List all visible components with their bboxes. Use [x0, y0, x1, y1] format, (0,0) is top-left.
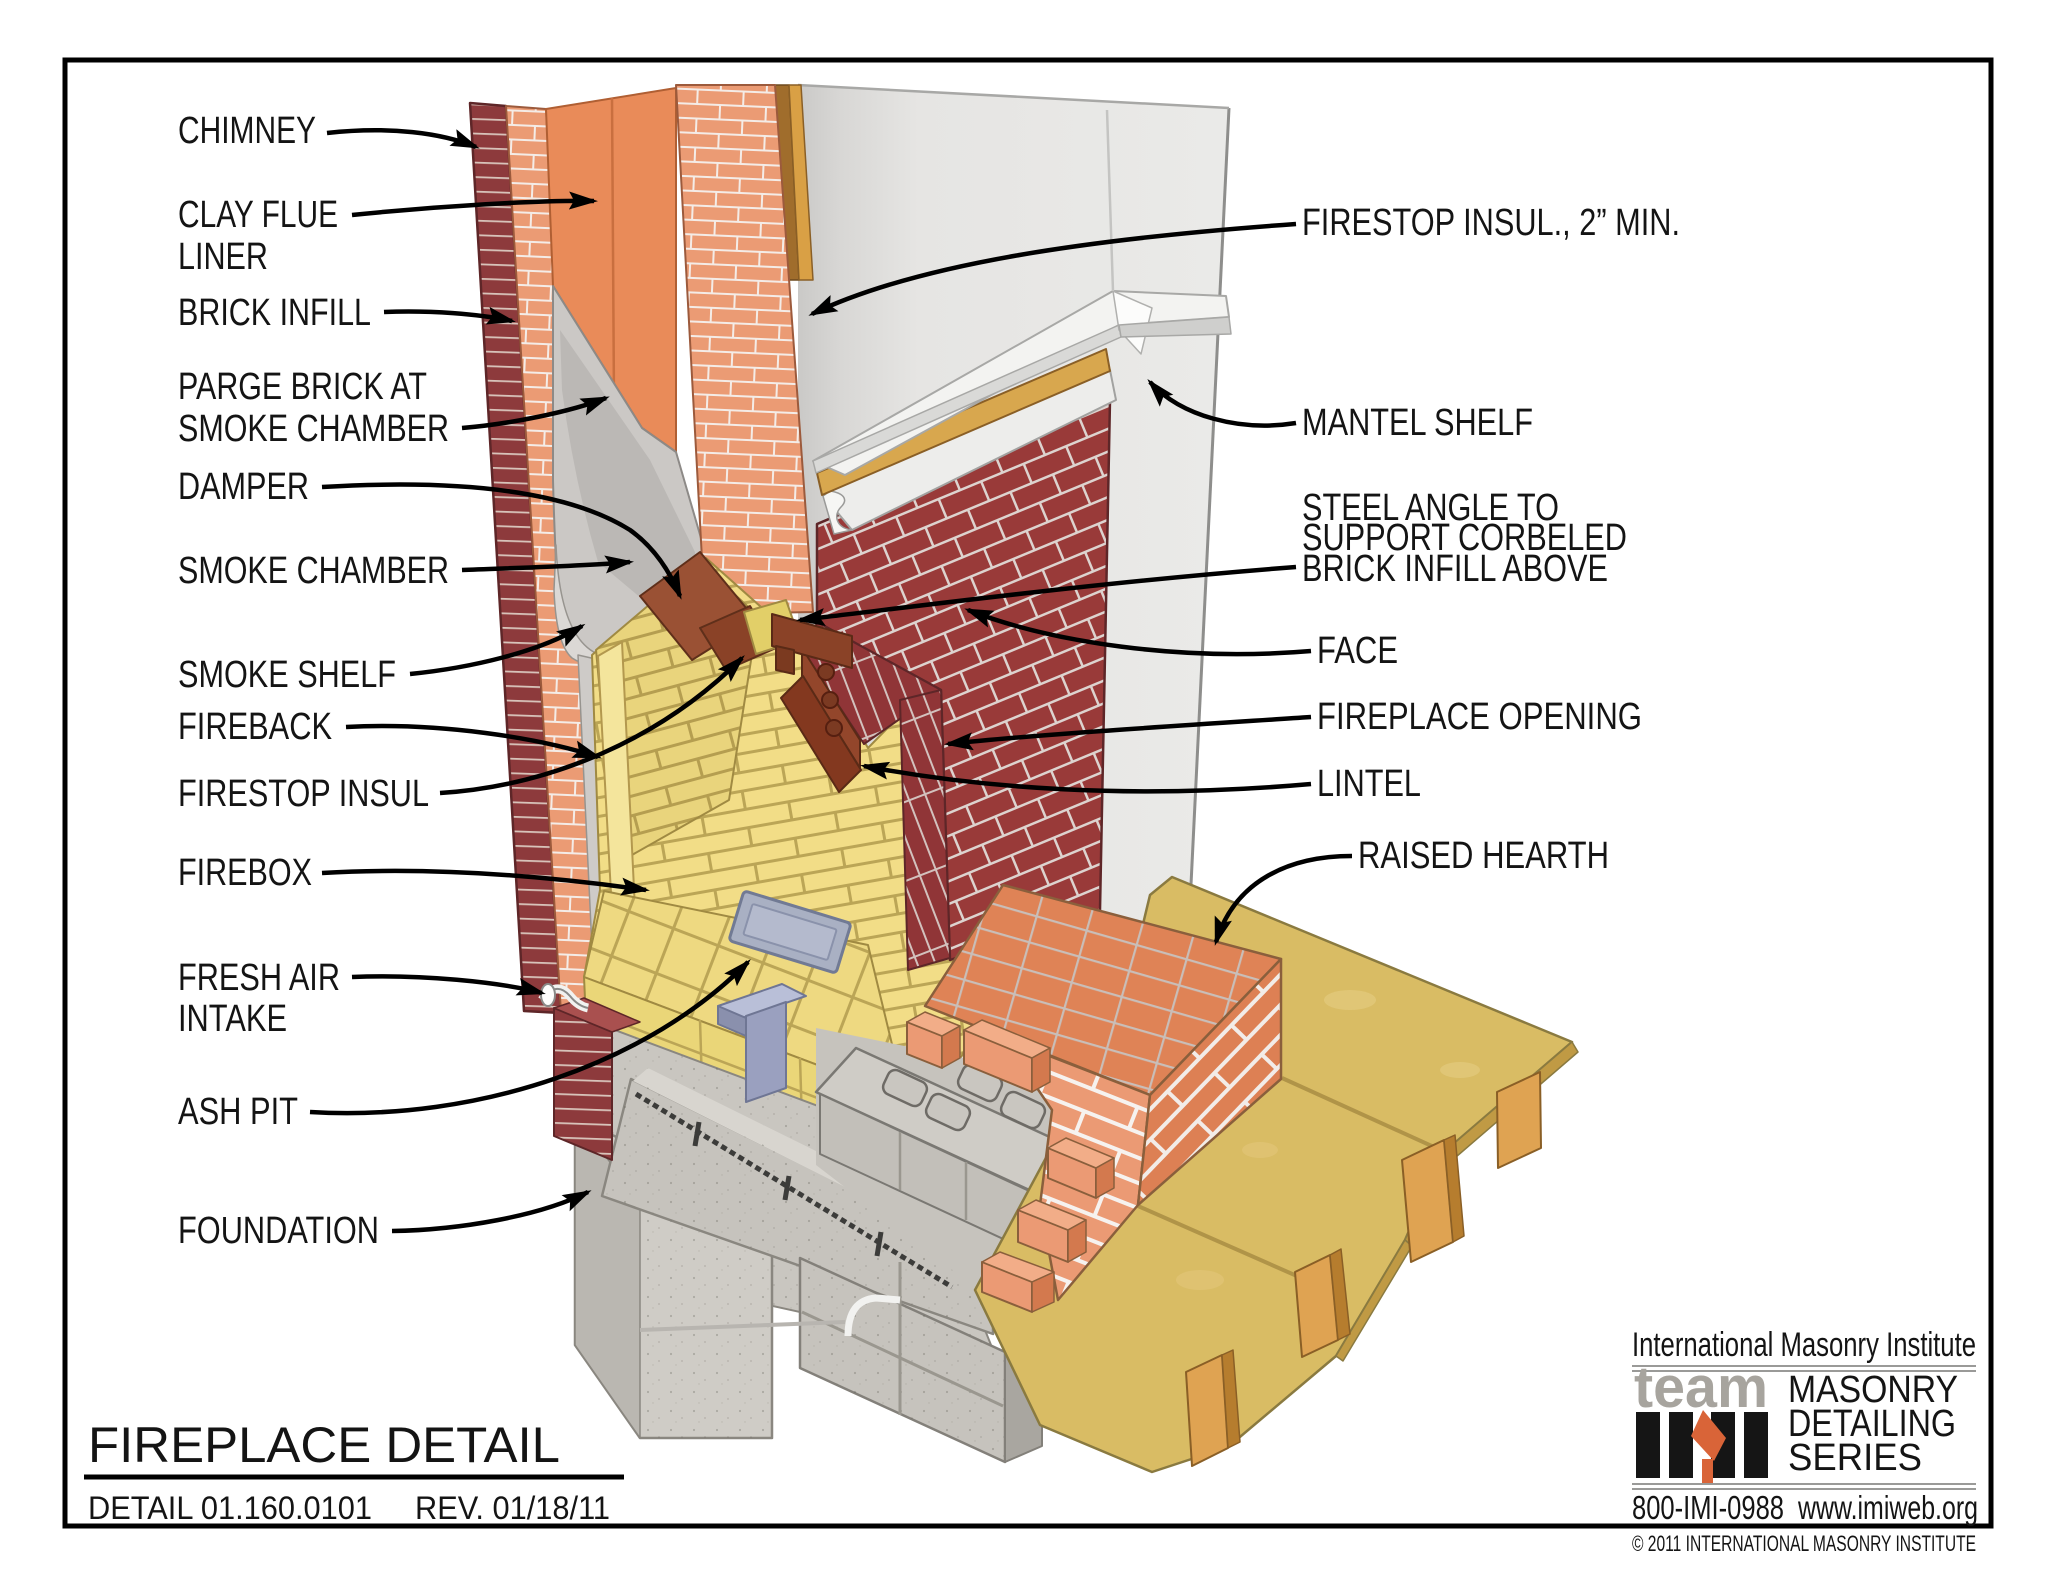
svg-text:PARGE BRICK AT: PARGE BRICK AT: [178, 366, 427, 408]
svg-text:LINTEL: LINTEL: [1317, 763, 1421, 805]
svg-text:FIRESTOP INSUL: FIRESTOP INSUL: [178, 773, 429, 815]
svg-text:© 2011 INTERNATIONAL MASONRY I: © 2011 INTERNATIONAL MASONRY INSTITUTE: [1632, 1531, 1976, 1556]
svg-text:SMOKE SHELF: SMOKE SHELF: [178, 654, 396, 696]
svg-text:MANTEL SHELF: MANTEL SHELF: [1302, 402, 1533, 444]
svg-text:FRESH AIR: FRESH AIR: [178, 957, 340, 999]
svg-text:FIREBACK: FIREBACK: [178, 706, 332, 748]
svg-text:FIREBOX: FIREBOX: [178, 852, 312, 894]
svg-text:BRICK INFILL: BRICK INFILL: [178, 292, 371, 334]
svg-text:800-IMI-0988: 800-IMI-0988: [1632, 1489, 1784, 1526]
svg-text:LINER: LINER: [178, 236, 268, 278]
svg-text:ASH PIT: ASH PIT: [178, 1091, 298, 1133]
svg-text:RAISED HEARTH: RAISED HEARTH: [1358, 835, 1609, 877]
svg-text:team: team: [1634, 1355, 1768, 1420]
svg-text:FIREPLACE OPENING: FIREPLACE OPENING: [1317, 696, 1642, 738]
svg-text:FIRESTOP INSUL., 2” MIN.: FIRESTOP INSUL., 2” MIN.: [1302, 202, 1680, 244]
svg-text:www.imiweb.org: www.imiweb.org: [1797, 1489, 1978, 1526]
svg-text:SERIES: SERIES: [1788, 1437, 1922, 1479]
svg-text:CHIMNEY: CHIMNEY: [178, 110, 316, 152]
svg-text:INTAKE: INTAKE: [178, 998, 287, 1040]
svg-text:DAMPER: DAMPER: [178, 466, 309, 508]
svg-text:REV. 01/18/11: REV. 01/18/11: [415, 1490, 610, 1526]
svg-text:CLAY FLUE: CLAY FLUE: [178, 194, 338, 236]
svg-text:FACE: FACE: [1317, 630, 1398, 672]
svg-text:BRICK INFILL ABOVE: BRICK INFILL ABOVE: [1302, 548, 1608, 590]
svg-text:FOUNDATION: FOUNDATION: [178, 1210, 379, 1252]
svg-text:DETAIL 01.160.0101: DETAIL 01.160.0101: [88, 1490, 372, 1526]
svg-text:SMOKE CHAMBER: SMOKE CHAMBER: [178, 408, 449, 450]
svg-text:FIREPLACE DETAIL: FIREPLACE DETAIL: [88, 1417, 560, 1473]
svg-text:SMOKE CHAMBER: SMOKE CHAMBER: [178, 550, 449, 592]
